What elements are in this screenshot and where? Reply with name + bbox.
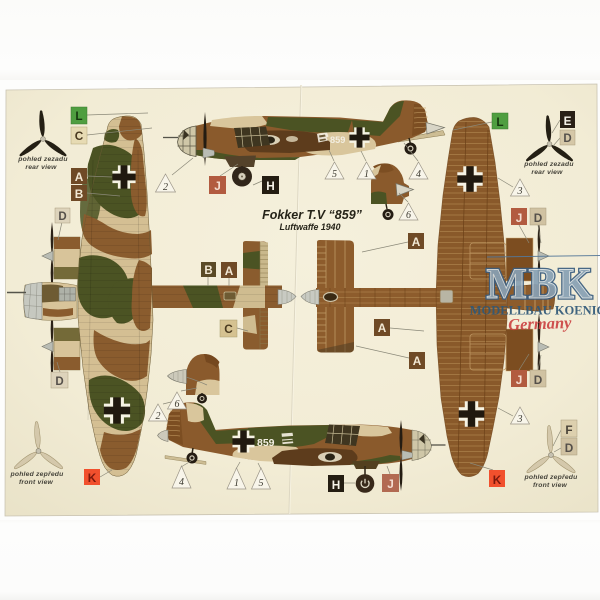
- svg-text:B: B: [75, 187, 84, 201]
- svg-text:J: J: [214, 179, 221, 193]
- svg-text:Luftwaffe 1940: Luftwaffe 1940: [280, 222, 341, 232]
- svg-text:4: 4: [179, 477, 184, 488]
- svg-text:3: 3: [517, 414, 523, 425]
- svg-text:859: 859: [330, 135, 345, 145]
- svg-text:2: 2: [163, 182, 168, 193]
- svg-text:859: 859: [257, 437, 275, 449]
- svg-text:K: K: [88, 471, 97, 485]
- svg-text:1: 1: [234, 478, 239, 489]
- svg-text:D: D: [55, 376, 63, 388]
- svg-text:pohled zepředu: pohled zepředu: [523, 474, 578, 481]
- svg-text:H: H: [332, 478, 341, 492]
- svg-text:L: L: [75, 109, 82, 123]
- svg-text:B: B: [204, 265, 212, 277]
- svg-text:front view: front view: [533, 482, 568, 489]
- svg-text:D: D: [58, 211, 66, 223]
- svg-text:A: A: [75, 170, 84, 184]
- svg-text:Germany: Germany: [508, 313, 573, 334]
- svg-text:MBK: MBK: [486, 261, 593, 308]
- svg-text:5: 5: [332, 169, 337, 180]
- svg-text:E: E: [564, 114, 572, 128]
- svg-text:L: L: [496, 115, 503, 129]
- svg-text:Fokker T.V “859”: Fokker T.V “859”: [262, 208, 363, 222]
- svg-text:A: A: [413, 354, 422, 368]
- svg-text:C: C: [224, 322, 233, 336]
- svg-text:D: D: [563, 133, 571, 145]
- svg-text:A: A: [378, 321, 387, 335]
- svg-text:K: K: [493, 473, 502, 487]
- svg-text:pohled zezadu: pohled zezadu: [523, 161, 574, 168]
- svg-text:D: D: [534, 373, 543, 387]
- svg-text:4: 4: [416, 169, 421, 180]
- svg-text:A: A: [225, 264, 234, 278]
- svg-text:F: F: [565, 423, 572, 437]
- svg-text:6: 6: [406, 210, 411, 221]
- svg-text:D: D: [534, 211, 543, 225]
- svg-text:2: 2: [156, 411, 161, 422]
- svg-text:C: C: [75, 129, 84, 143]
- svg-text:A: A: [412, 235, 421, 249]
- svg-text:J: J: [516, 211, 523, 225]
- svg-text:pohled zepředu: pohled zepředu: [9, 471, 64, 478]
- svg-text:J: J: [516, 373, 523, 387]
- svg-text:rear view: rear view: [25, 164, 57, 171]
- svg-text:D: D: [565, 441, 574, 455]
- svg-text:3: 3: [517, 186, 523, 197]
- svg-text:rear view: rear view: [531, 169, 563, 176]
- svg-text:front view: front view: [19, 479, 54, 486]
- svg-text:H: H: [266, 179, 275, 193]
- svg-text:5: 5: [259, 478, 264, 489]
- svg-text:pohled zezadu: pohled zezadu: [17, 156, 68, 163]
- svg-text:1: 1: [364, 169, 369, 180]
- svg-text:6: 6: [175, 399, 180, 410]
- svg-text:J: J: [387, 477, 394, 491]
